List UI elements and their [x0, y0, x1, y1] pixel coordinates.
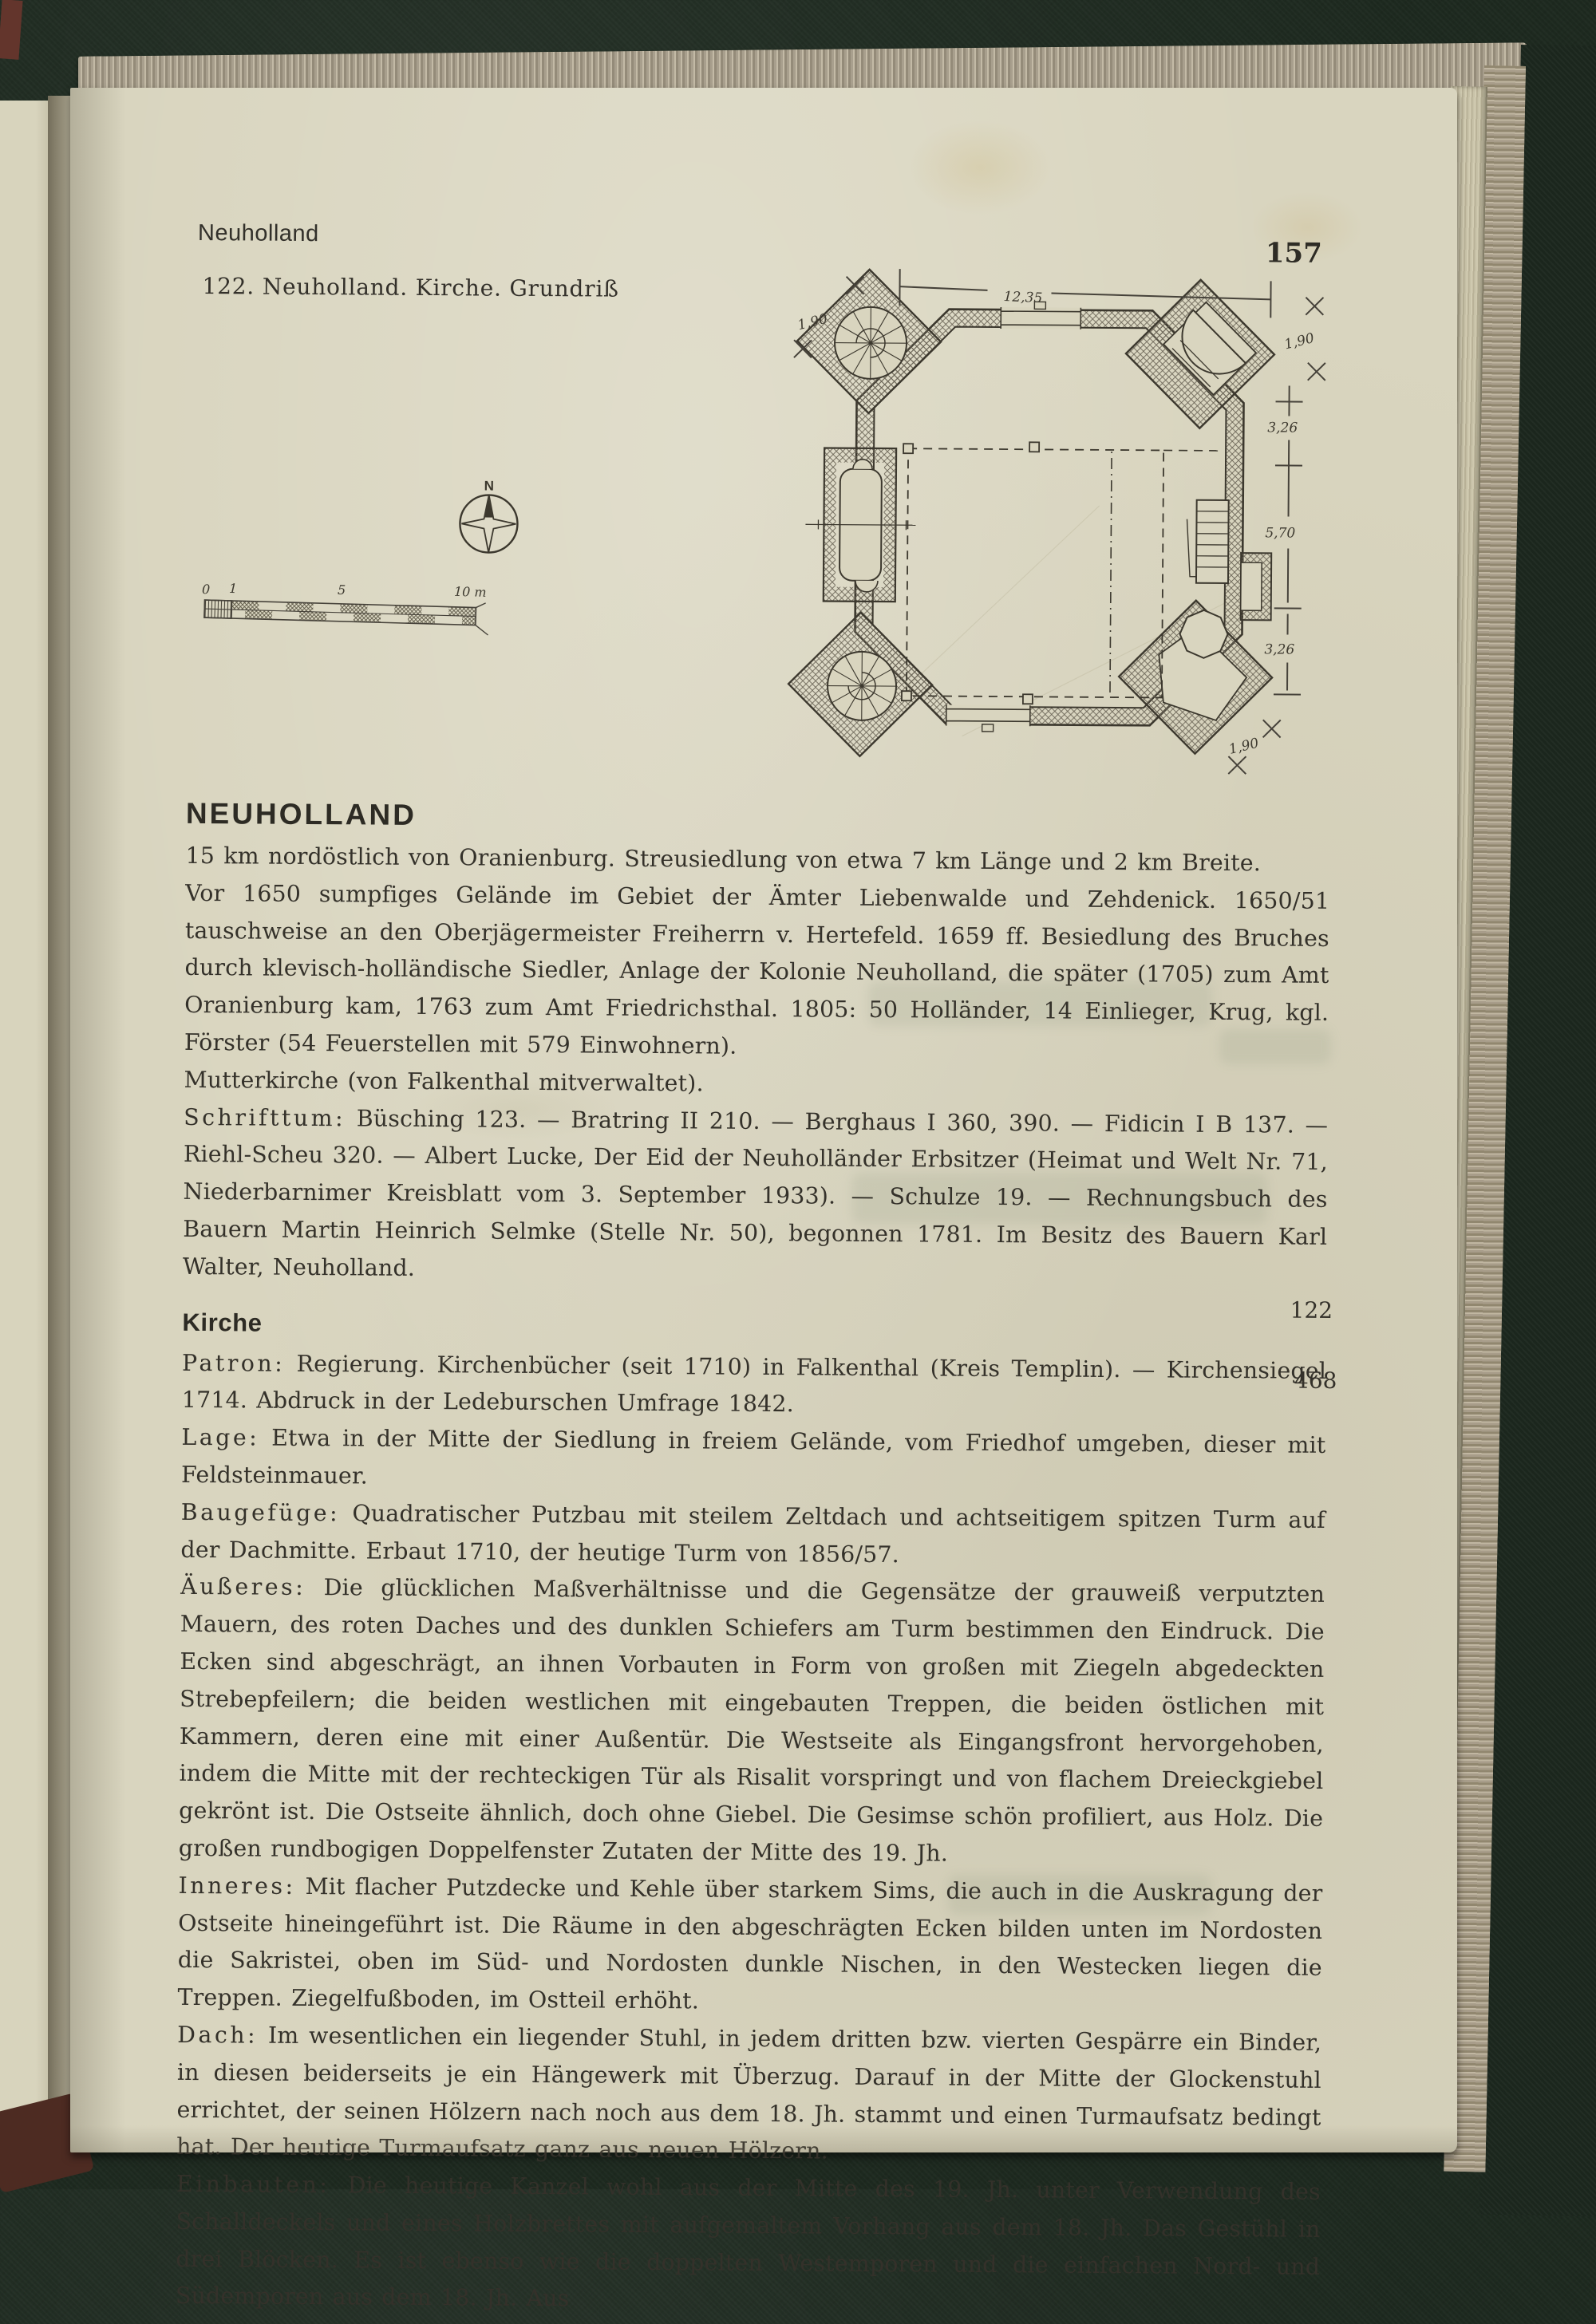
page-content: Neuholland 157 122. Neuholland. Kirche. … [57, 87, 1458, 2161]
scale-label-1: 1 [229, 581, 238, 596]
northwest-stair-tower [796, 269, 941, 413]
dim-corner-ne: 1,90 [1282, 330, 1316, 353]
northeast-chamber [1125, 279, 1274, 428]
paragraph-baugefuege: Baugefüge: Quadratischer Putzbau mit ste… [180, 1494, 1325, 1577]
paragraph-lage: Lage: Etwa in der Mitte der Siedlung in … [181, 1419, 1326, 1502]
book-page: Neuholland 157 122. Neuholland. Kirche. … [70, 88, 1457, 2152]
dim-right-middle: 5,70 [1265, 525, 1295, 541]
scale-bar: 0 1 5 10 m [201, 577, 490, 635]
dim-right-lower: 3,26 [1264, 641, 1294, 657]
book-spine-edge [0, 0, 23, 60]
east-stair [1187, 500, 1229, 583]
paragraph-inneres: Inneres: Mit flacher Putzdecke und Kehle… [177, 1868, 1322, 2025]
paragraph-history: Vor 1650 sumpfiges Gelände im Gebiet der… [184, 875, 1330, 1070]
paragraph-einbauten: Einbauten: Die heutige Kanzel wohl aus d… [176, 2166, 1321, 2323]
dim-top-width: 12,35 [1003, 289, 1042, 306]
paragraph-literature: Schrifttum: Büsching 123. — Bratring II … [183, 1099, 1329, 1293]
previous-page-edge [0, 101, 51, 2151]
compass-north-label: N [484, 479, 494, 494]
scale-label-10: 10 m [454, 584, 487, 600]
scale-label-5: 5 [338, 582, 346, 598]
scale-label-0: 0 [202, 582, 211, 597]
section-title-kirche: Kirche [182, 1306, 1326, 1346]
dim-corner-se: 1,90 [1227, 736, 1261, 758]
article-text: NEUHOLLAND 15 km nordöstlich von Oranien… [176, 796, 1330, 2323]
paragraph-aeusseres: Äußeres: Die glücklichen Maßverhältnisse… [179, 1568, 1325, 1875]
floor-plan-figure: 12,35 1,90 1,90 3,26 5,70 3,26 1,90 N [116, 251, 1357, 811]
paragraph-patron: Patron: Regierung. Kirchenbücher (seit 1… [182, 1344, 1327, 1427]
article-title: NEUHOLLAND [186, 796, 1330, 839]
southwest-stair-tower [788, 612, 932, 756]
running-head: Neuholland [198, 220, 319, 247]
paragraph-dach: Dach: Im wesentlichen ein liegender Stuh… [176, 2017, 1321, 2174]
dim-right-upper: 3,26 [1267, 420, 1298, 436]
pulpit-octagon [1179, 610, 1227, 658]
margin-figure-ref: 468 [1294, 1367, 1337, 1394]
east-projection [1241, 553, 1272, 620]
south-window [946, 705, 1030, 732]
compass-rose: N [460, 478, 518, 553]
margin-figure-ref: 122 [1290, 1297, 1333, 1324]
west-entrance-porch [805, 448, 916, 602]
